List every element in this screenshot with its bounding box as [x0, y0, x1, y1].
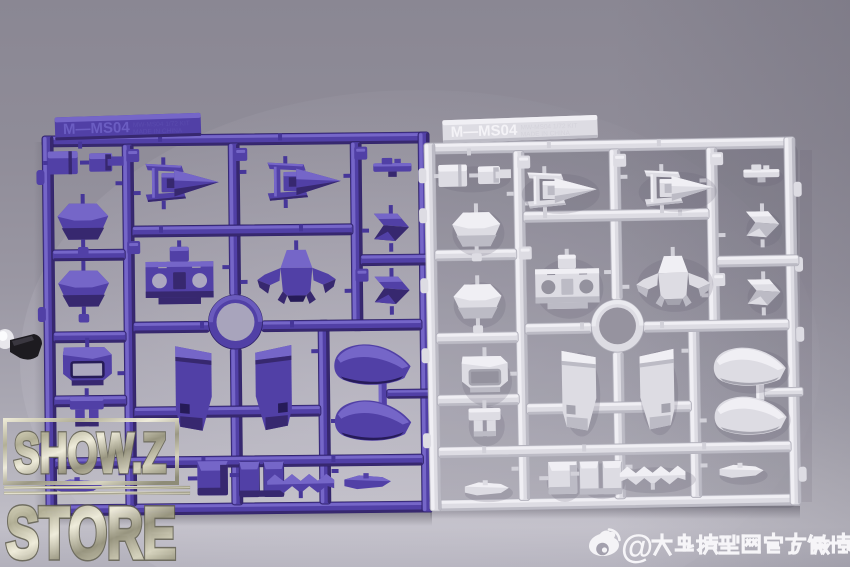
svg-text:@: @ — [621, 528, 653, 565]
svg-text:STORE: STORE — [6, 494, 176, 567]
svg-text:M—MS04: M—MS04 — [450, 122, 518, 141]
svg-text:M—MS04: M—MS04 — [63, 119, 131, 138]
svg-text:SHOW.Z: SHOW.Z — [14, 421, 166, 484]
